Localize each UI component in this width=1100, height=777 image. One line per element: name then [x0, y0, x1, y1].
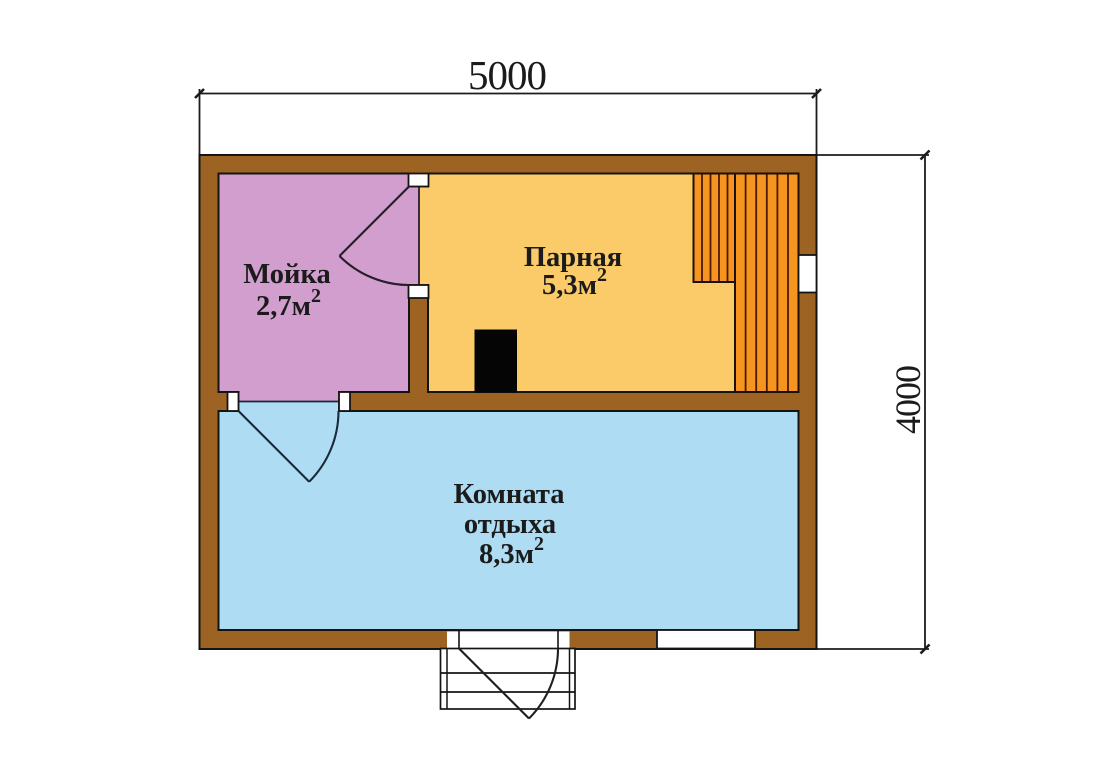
svg-text:5000: 5000: [468, 52, 546, 98]
svg-text:4000: 4000: [888, 366, 928, 434]
svg-text:Парная: Парная: [524, 242, 622, 273]
svg-text:Комната: Комната: [454, 479, 565, 510]
